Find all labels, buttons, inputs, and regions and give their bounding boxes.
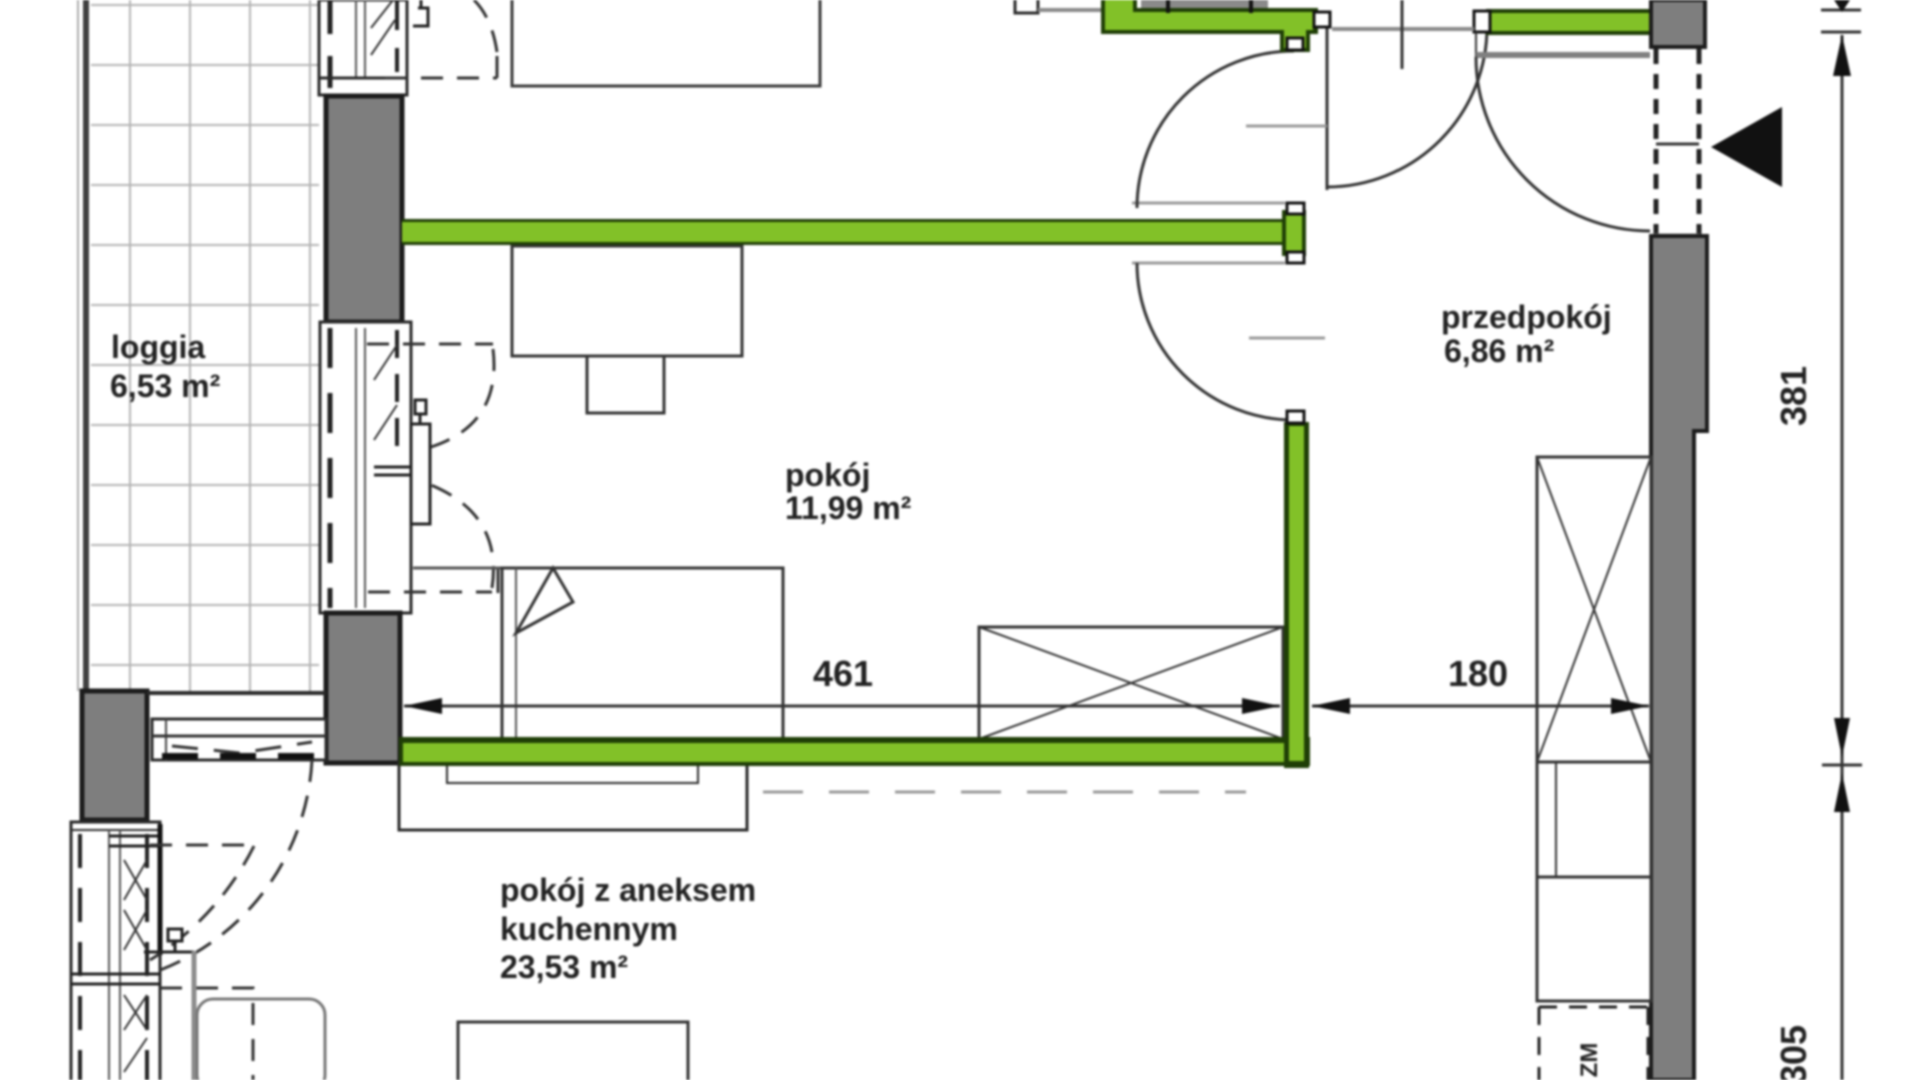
svg-text:461: 461	[813, 653, 873, 694]
svg-text:381: 381	[1773, 366, 1814, 426]
svg-text:6,53 m²: 6,53 m²	[110, 368, 220, 404]
svg-text:6,86 m²: 6,86 m²	[1444, 333, 1554, 369]
svg-text:loggia: loggia	[111, 329, 205, 365]
svg-text:ZM: ZM	[1576, 1043, 1603, 1078]
svg-text:305: 305	[1773, 1025, 1814, 1080]
svg-text:23,53 m²: 23,53 m²	[500, 949, 628, 985]
svg-text:pokój: pokój	[785, 457, 870, 493]
svg-text:pokój z aneksem: pokój z aneksem	[500, 872, 756, 908]
svg-text:11,99 m²: 11,99 m²	[785, 490, 911, 526]
svg-text:kuchennym: kuchennym	[500, 911, 678, 947]
svg-text:180: 180	[1448, 653, 1508, 694]
svg-text:przedpokój: przedpokój	[1441, 299, 1612, 335]
